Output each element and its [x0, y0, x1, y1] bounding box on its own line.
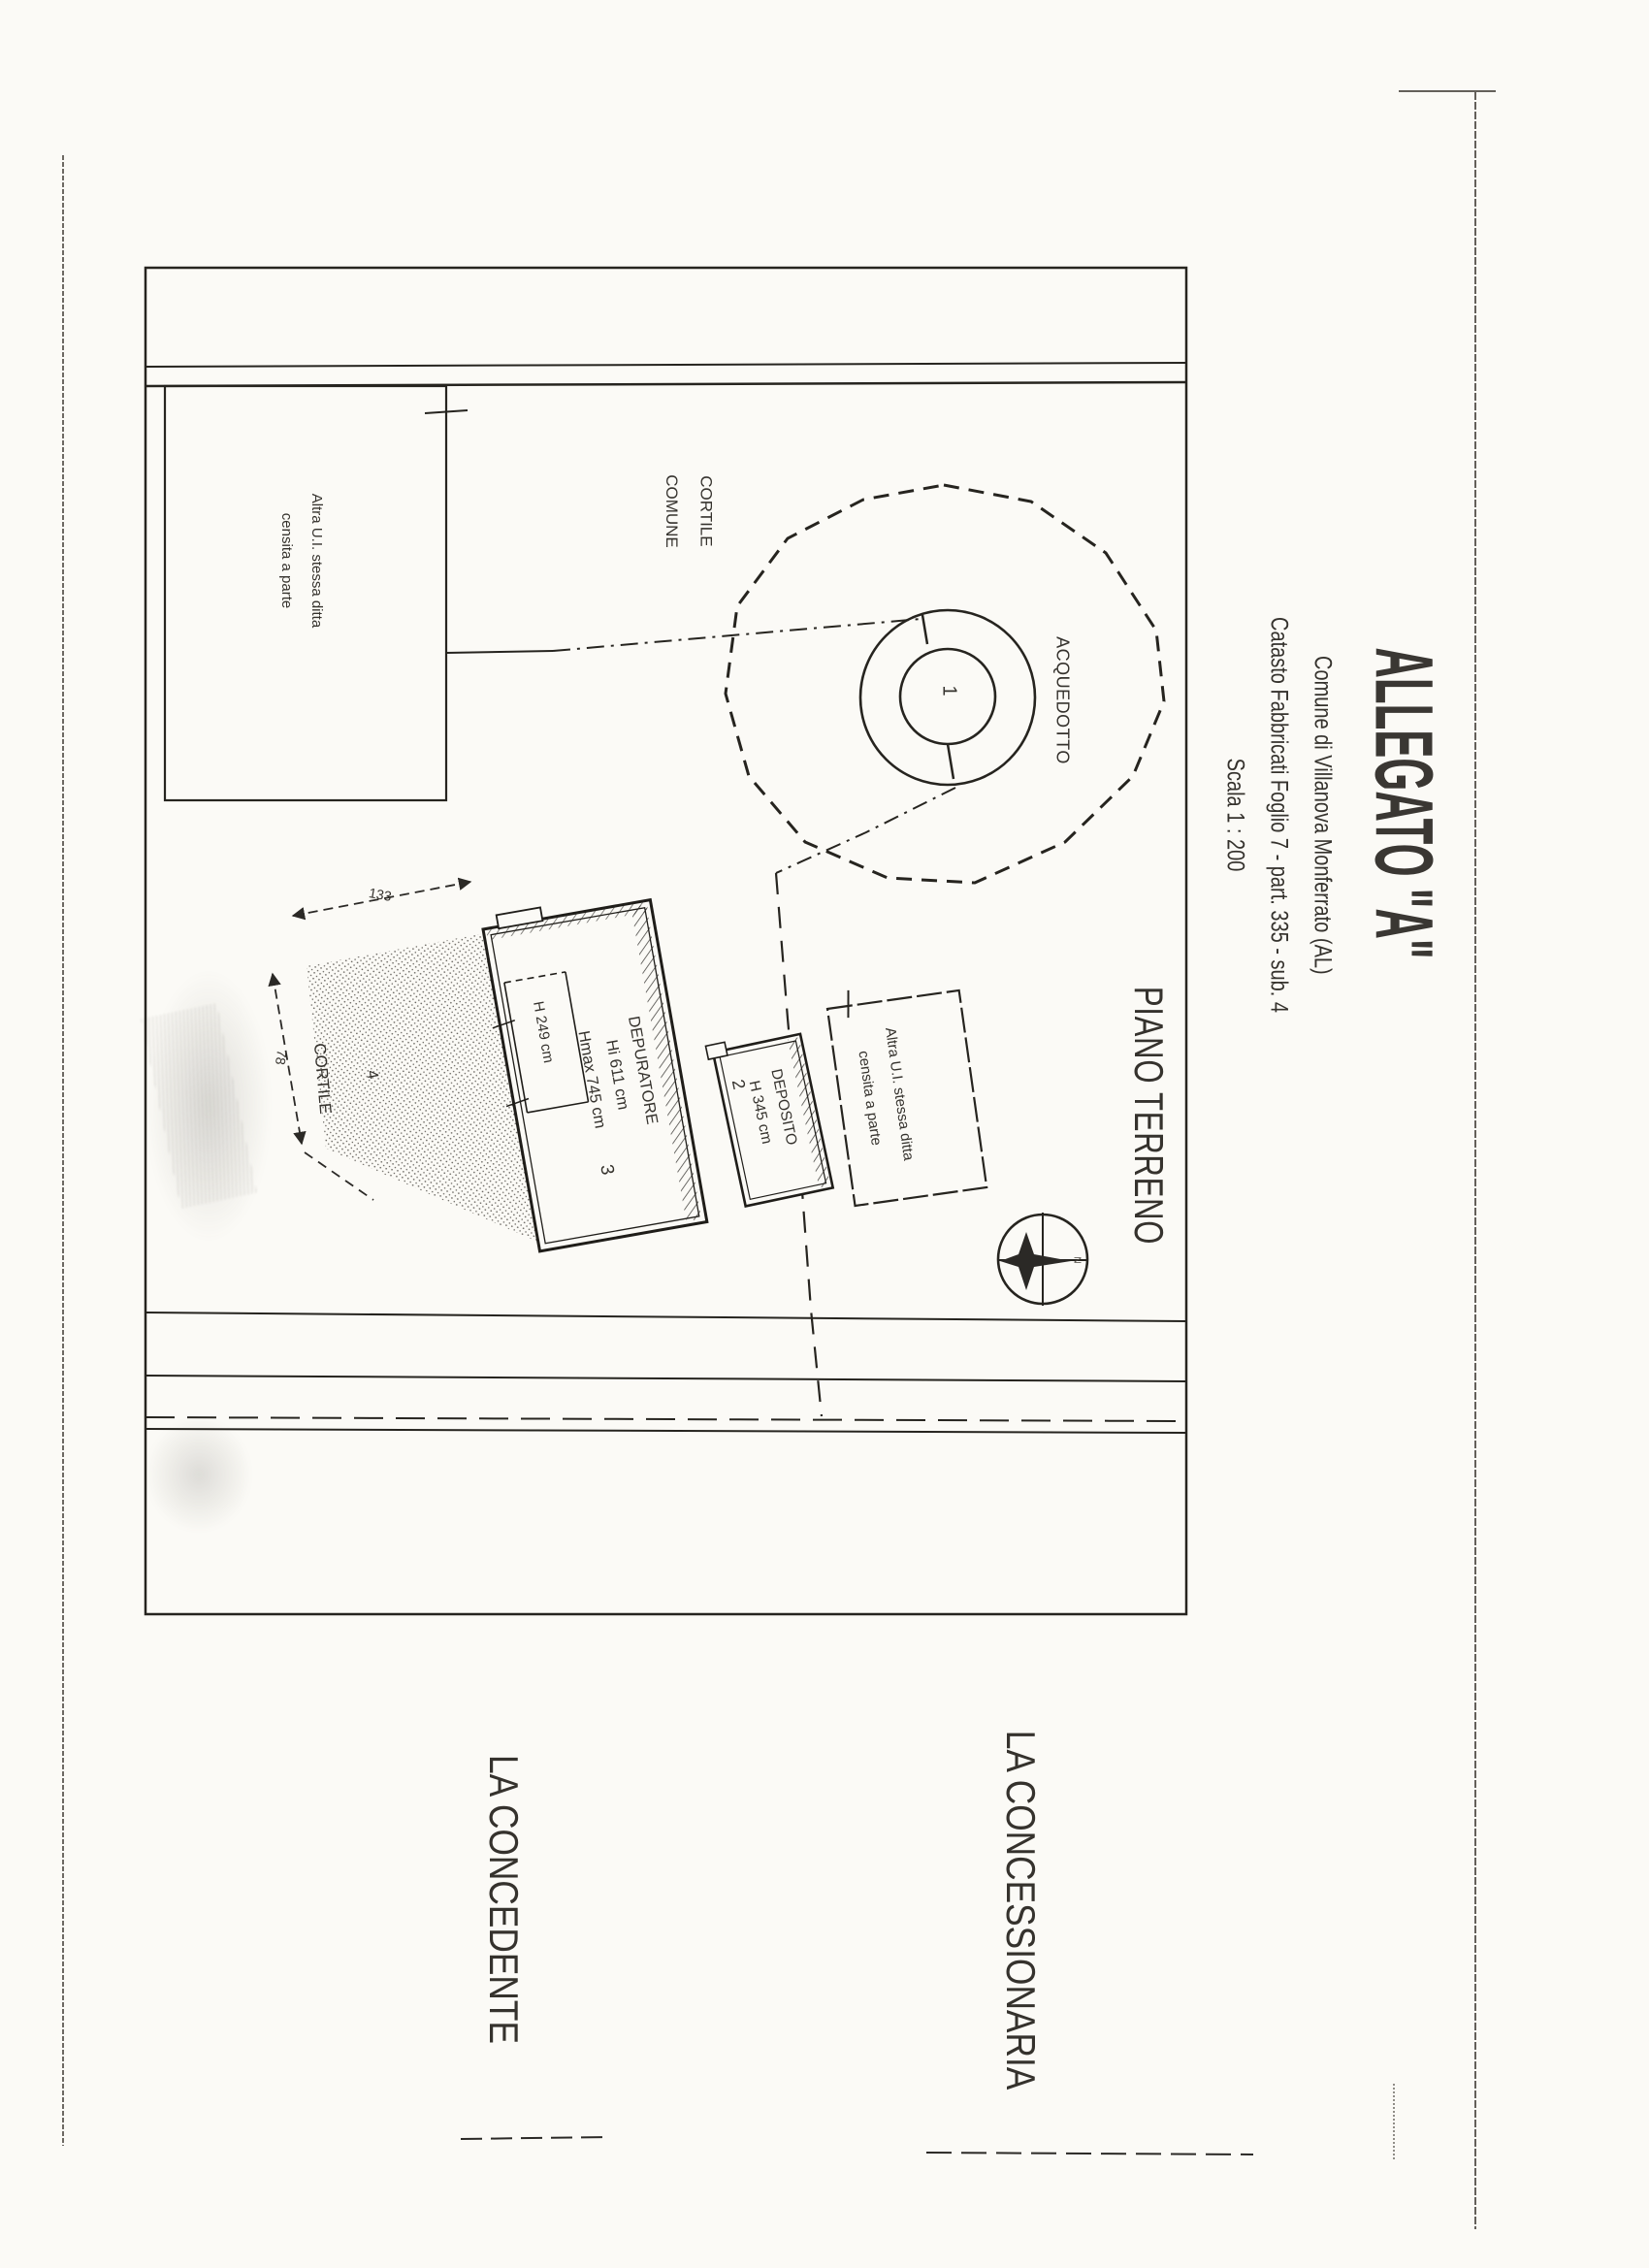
subtitle-scala: Scala 1 : 200: [1213, 617, 1257, 1013]
scanned-cadastral-plan-page: ALLEGATO "A" Comune di Villanova Monferr…: [0, 0, 1649, 2268]
signature-grantor: LA CONCEDENTE: [480, 1755, 527, 2044]
dimension-left-value: 78: [273, 1049, 290, 1066]
page-title: ALLEGATO "A": [1357, 647, 1451, 958]
aqueduct-well: [860, 610, 1035, 785]
other-unit-left-line2: censita a parte: [271, 494, 301, 628]
other-unit-left-line1: Altra U.I. stessa ditta: [301, 494, 331, 628]
subtitle-comune: Comune di Villanova Monferrato (AL): [1301, 617, 1344, 1013]
dashed-area-boundary: [726, 485, 1164, 883]
aqueduct-label: ACQUEDOTTO: [1052, 636, 1073, 764]
title-subtitle-block: Comune di Villanova Monferrato (AL) Cata…: [1213, 617, 1344, 1013]
other-unit-left-label: Altra U.I. stessa ditta censita a parte: [271, 494, 331, 628]
courtyard-common-label: CORTILE COMUNE: [654, 474, 723, 548]
compass-north-label: N: [1072, 1256, 1083, 1263]
signature-concessionaire: LA CONCESSIONARIA: [997, 1731, 1044, 2090]
floor-label: PIANO TERRENO: [1125, 987, 1172, 1245]
courtyard-common-line2: COMUNE: [654, 474, 689, 548]
well-number: 1: [938, 685, 960, 696]
lower-road-lines: [145, 1312, 1186, 1433]
upper-road-lines: [145, 363, 1186, 386]
plan-drawing: [0, 0, 1649, 2268]
subtitle-catasto: Catasto Fabbricati Foglio 7 - part. 335 …: [1257, 617, 1301, 1013]
courtyard-common-line1: CORTILE: [689, 474, 724, 548]
signature-lines: [461, 2137, 1253, 2155]
plan-boundary-box: [145, 268, 1186, 1614]
